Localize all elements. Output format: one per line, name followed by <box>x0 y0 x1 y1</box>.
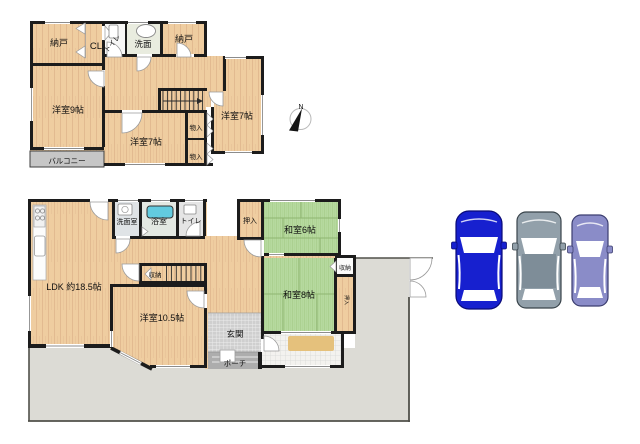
svg-text:納戸: 納戸 <box>50 37 68 48</box>
svg-text:物入: 物入 <box>190 152 204 161</box>
svg-text:LDK 約18.5帖: LDK 約18.5帖 <box>46 281 102 292</box>
svg-text:浴室: 浴室 <box>151 216 167 226</box>
svg-text:和室6帖: 和室6帖 <box>284 224 316 235</box>
svg-text:納戸: 納戸 <box>175 33 193 44</box>
svg-text:洋室10.5帖: 洋室10.5帖 <box>140 312 185 323</box>
svg-text:和室8帖: 和室8帖 <box>283 289 315 300</box>
svg-text:CL: CL <box>90 41 102 52</box>
svg-text:収納: 収納 <box>149 270 162 279</box>
svg-text:ポーチ: ポーチ <box>224 359 247 368</box>
svg-text:洋室9帖: 洋室9帖 <box>52 104 84 115</box>
svg-text:押入: 押入 <box>243 216 257 225</box>
svg-text:N: N <box>298 104 303 111</box>
svg-text:洗面室: 洗面室 <box>117 217 138 226</box>
svg-text:洗面: 洗面 <box>134 39 152 49</box>
svg-text:トイレ: トイレ <box>181 218 202 225</box>
svg-text:物入: 物入 <box>190 123 204 132</box>
svg-text:押入: 押入 <box>343 295 350 305</box>
svg-text:洋室7帖: 洋室7帖 <box>130 136 162 147</box>
svg-text:洋室7帖: 洋室7帖 <box>221 110 253 121</box>
svg-text:バルコニー: バルコニー <box>48 157 85 166</box>
svg-text:玄関: 玄関 <box>226 329 243 339</box>
svg-text:収納: 収納 <box>339 264 351 272</box>
